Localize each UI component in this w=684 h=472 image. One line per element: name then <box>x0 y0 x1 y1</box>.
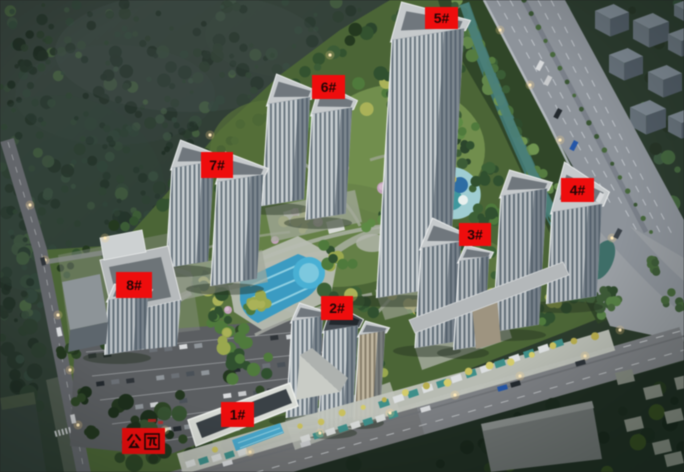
svg-text:3#: 3# <box>467 227 483 243</box>
svg-text:4#: 4# <box>570 182 586 198</box>
svg-text:8#: 8# <box>126 277 142 293</box>
svg-text:6#: 6# <box>321 79 337 95</box>
svg-text:1#: 1# <box>230 407 246 423</box>
svg-text:7#: 7# <box>209 157 225 173</box>
svg-text:2#: 2# <box>329 300 345 316</box>
svg-text:5#: 5# <box>434 10 450 26</box>
